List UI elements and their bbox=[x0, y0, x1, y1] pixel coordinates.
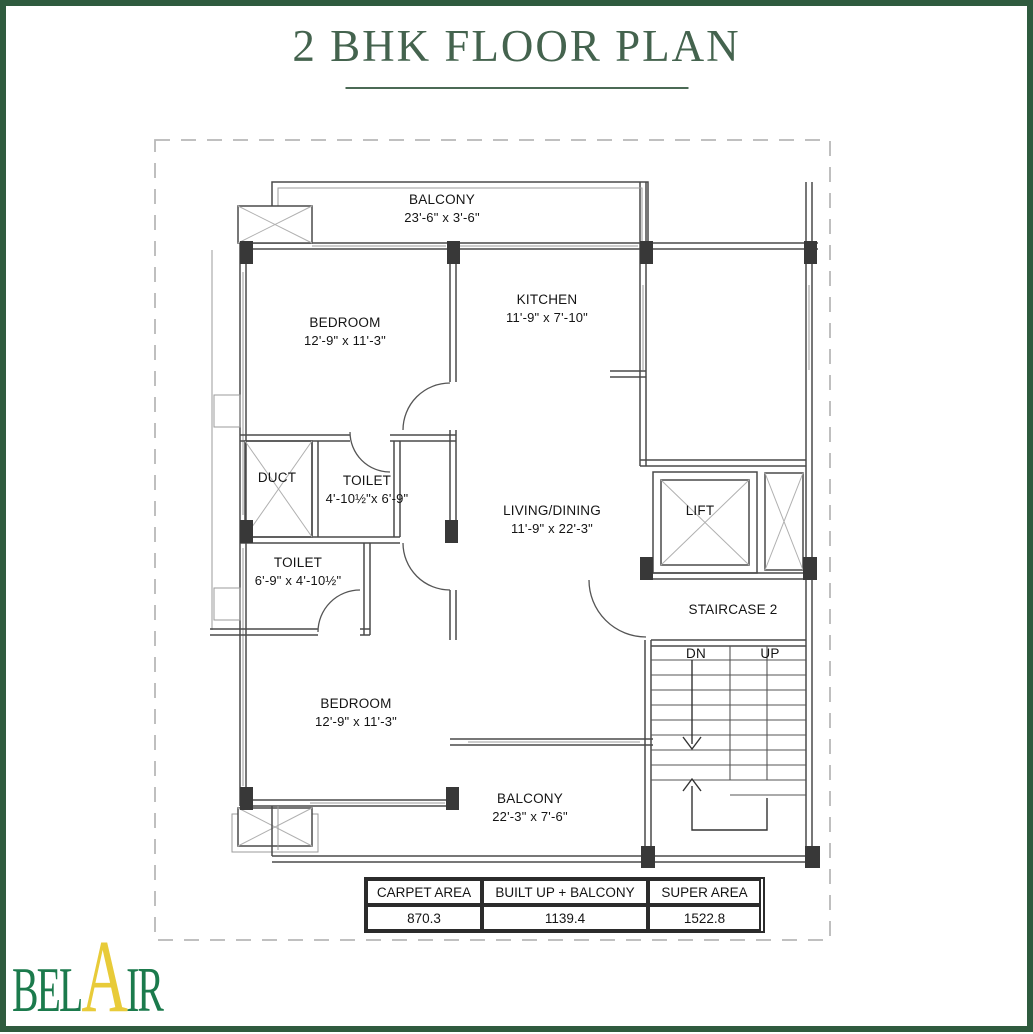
room-dims: 12'-9" x 11'-3" bbox=[315, 713, 397, 731]
duct-crossbox bbox=[245, 441, 312, 537]
room-name: BALCONY bbox=[492, 789, 568, 808]
room-dims: 22'-3" x 7'-6" bbox=[492, 808, 568, 826]
room-name: KITCHEN bbox=[506, 290, 588, 309]
room-dims: 4'-10½"x 6'-9" bbox=[326, 490, 409, 508]
room-dims: 11'-9" x 7'-10" bbox=[506, 309, 588, 327]
area-table: CARPET AREA BUILT UP + BALCONY SUPER ARE… bbox=[364, 877, 765, 933]
room-name: LIFT bbox=[686, 501, 715, 520]
floor-plan-page: 2 BHK FLOOR PLAN bbox=[0, 0, 1033, 1032]
room-label-staircase: STAIRCASE 2 bbox=[689, 600, 778, 619]
room-label-toilet-upper: TOILET 4'-10½"x 6'-9" bbox=[326, 471, 409, 509]
logo-text-bel: BEL bbox=[12, 954, 81, 1025]
room-name: STAIRCASE 2 bbox=[689, 600, 778, 619]
room-name: BEDROOM bbox=[304, 313, 386, 332]
room-name: BALCONY bbox=[404, 190, 480, 209]
room-label-living-dining: LIVING/DINING 11'-9" x 22'-3" bbox=[503, 501, 601, 539]
area-table-header-builtup: BUILT UP + BALCONY bbox=[482, 879, 648, 905]
room-label-bedroom-lower: BEDROOM 12'-9" x 11'-3" bbox=[315, 694, 397, 732]
area-table-value-carpet: 870.3 bbox=[366, 905, 482, 931]
room-name: LIVING/DINING bbox=[503, 501, 601, 520]
stair-direction: UP bbox=[760, 644, 779, 663]
room-label-bedroom-upper: BEDROOM 12'-9" x 11'-3" bbox=[304, 313, 386, 351]
shaft-crossbox-top bbox=[238, 206, 312, 243]
stair-label-down: DN bbox=[686, 644, 706, 663]
room-dims: 11'-9" x 22'-3" bbox=[503, 520, 601, 538]
stair-direction: DN bbox=[686, 644, 706, 663]
room-dims: 6'-9" x 4'-10½" bbox=[255, 572, 342, 590]
room-name: TOILET bbox=[255, 553, 342, 572]
lift-shaft bbox=[653, 472, 757, 573]
area-table-header-carpet: CARPET AREA bbox=[366, 879, 482, 905]
logo-text-ir: IR bbox=[126, 954, 162, 1025]
area-table-value-builtup: 1139.4 bbox=[482, 905, 648, 931]
room-label-duct: DUCT bbox=[258, 468, 296, 487]
room-name: DUCT bbox=[258, 468, 296, 487]
service-shaft bbox=[765, 473, 803, 570]
room-name: TOILET bbox=[326, 471, 409, 490]
room-name: BEDROOM bbox=[315, 694, 397, 713]
room-dims: 12'-9" x 11'-3" bbox=[304, 332, 386, 350]
area-table-value-super: 1522.8 bbox=[648, 905, 761, 931]
room-dims: 23'-6" x 3'-6" bbox=[404, 209, 480, 227]
room-label-balcony-top: BALCONY 23'-6" x 3'-6" bbox=[404, 190, 480, 228]
room-label-kitchen: KITCHEN 11'-9" x 7'-10" bbox=[506, 290, 588, 328]
room-label-toilet-lower: TOILET 6'-9" x 4'-10½" bbox=[255, 553, 342, 591]
shaft-crossbox-bottom bbox=[232, 808, 318, 852]
room-label-balcony-bottom: BALCONY 22'-3" x 7'-6" bbox=[492, 789, 568, 827]
belair-logo: BELAIR bbox=[12, 935, 162, 1018]
logo-letter-a: A bbox=[81, 919, 126, 1034]
stair-label-up: UP bbox=[760, 644, 779, 663]
staircase bbox=[272, 640, 820, 868]
stair-arrows bbox=[683, 660, 767, 830]
room-label-lift: LIFT bbox=[686, 501, 715, 520]
area-table-header-super: SUPER AREA bbox=[648, 879, 761, 905]
